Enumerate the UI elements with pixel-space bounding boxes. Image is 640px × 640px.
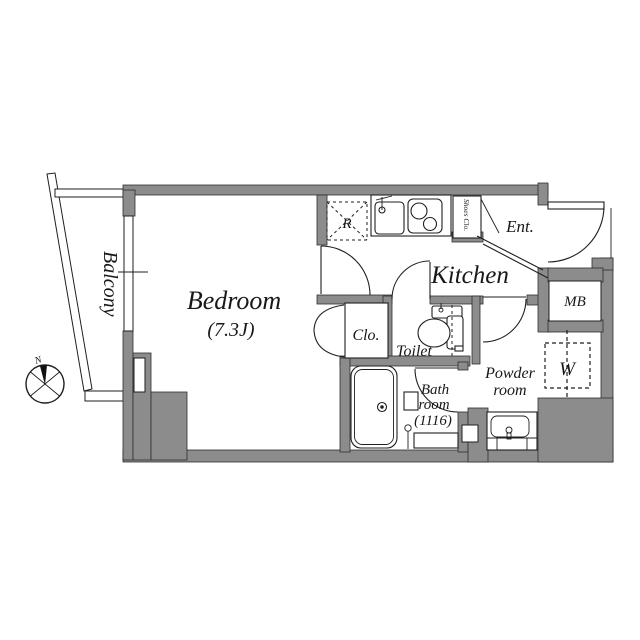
closet-bifold-door <box>314 305 344 330</box>
balcony: Balcony <box>47 173 123 401</box>
closet-label: Clo. <box>352 327 379 344</box>
wall-mb-bottom <box>548 320 603 332</box>
toilet-foot <box>455 346 463 351</box>
bedroom-window <box>118 216 148 331</box>
closet-bifold-door <box>314 330 344 357</box>
bedroom-label: Bedroom <box>187 286 281 315</box>
pillar-shaft-recess <box>134 358 145 392</box>
bath-shower-icon <box>405 425 411 431</box>
entrance-label: Ent. <box>505 217 534 236</box>
balcony-slanted-wall <box>47 173 92 391</box>
bathroom-label-line2: room <box>418 397 449 413</box>
window-glass <box>124 216 133 331</box>
powder-room-label-line2: room <box>493 382 526 399</box>
wall-washer-alcove <box>538 398 613 462</box>
front-door-swing-arc <box>548 206 604 262</box>
refrigerator-label: R <box>341 216 351 232</box>
stove-burner <box>411 203 427 219</box>
compass: N <box>26 354 64 403</box>
closet: Clo. <box>345 303 388 358</box>
floor-plan-drawing: Balcony N <box>0 0 640 640</box>
front-door-leaf <box>548 202 604 209</box>
kitchen-sink <box>375 202 404 234</box>
kitchen-fixtures: R <box>327 195 451 240</box>
floor-plan-page: Balcony N <box>0 0 640 640</box>
balcony-label: Balcony <box>99 251 121 317</box>
bathroom-label-line3: (1116) <box>414 413 452 429</box>
bathtub-drain-dot <box>380 405 384 409</box>
wall-pillar-step2 <box>151 392 187 460</box>
bedroom-size-label: (7.3J) <box>207 319 255 341</box>
toilet-room: Toilet <box>396 303 463 360</box>
kitchen-door-arc <box>321 246 370 295</box>
bathroom: Bath room (1116) <box>351 366 458 449</box>
bath-shelf <box>404 392 418 410</box>
wall-mb-top <box>548 268 603 282</box>
balcony-bottom-wall <box>85 391 123 401</box>
bathtub <box>351 366 397 448</box>
stove-burner <box>424 218 437 231</box>
washer-label: W <box>559 359 577 380</box>
wall-top <box>123 185 548 195</box>
bathroom-label-line1: Bath <box>421 382 449 398</box>
bath-threshold <box>414 433 458 448</box>
wall-toilet-right <box>472 296 480 364</box>
shoes-closet-label: Shoes Clo. <box>462 199 471 231</box>
wall-top-right-corner <box>538 183 548 205</box>
wall-left-top <box>123 190 135 216</box>
shoes-closet-diagonal <box>481 199 499 233</box>
wall-left-column <box>123 331 133 460</box>
wall-bath-left <box>340 358 350 452</box>
meter-box-label: MB <box>563 294 586 310</box>
balcony-top-wall <box>55 189 123 197</box>
wall-bath-right-stub <box>458 362 468 370</box>
toilet-door-arc <box>392 261 430 299</box>
powder-room-label-line1: Powder <box>484 365 536 382</box>
toilet-label: Toilet <box>396 343 432 360</box>
wall-bedroom-kitchen <box>317 195 327 245</box>
powder-door-arc <box>483 299 526 342</box>
kitchen-label: Kitchen <box>430 262 509 289</box>
powder-wall-niche <box>462 425 478 442</box>
